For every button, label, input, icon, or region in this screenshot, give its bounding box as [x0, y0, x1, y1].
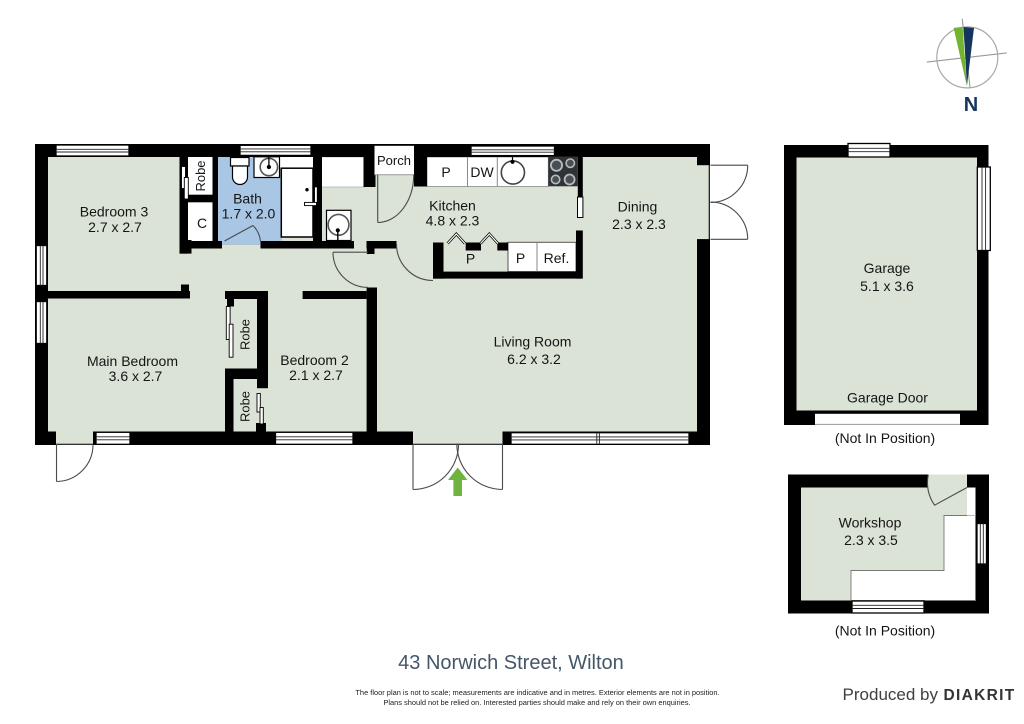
- svg-text:2.1 x 2.7: 2.1 x 2.7: [289, 367, 343, 383]
- svg-text:Living Room: Living Room: [494, 334, 572, 350]
- svg-text:C: C: [197, 215, 207, 231]
- svg-text:(Not In Position): (Not In Position): [835, 623, 935, 639]
- svg-text:4.8 x 2.3: 4.8 x 2.3: [426, 213, 480, 229]
- svg-text:Produced by: Produced by: [843, 685, 939, 704]
- svg-text:43 Norwich Street, Wilton: 43 Norwich Street, Wilton: [398, 652, 624, 674]
- svg-text:Ref.: Ref.: [544, 250, 570, 266]
- svg-text:Robe: Robe: [238, 319, 253, 350]
- svg-text:Bedroom 3: Bedroom 3: [80, 204, 149, 220]
- svg-text:2.7 x 2.7: 2.7 x 2.7: [88, 219, 142, 235]
- svg-text:3.6 x 2.7: 3.6 x 2.7: [109, 368, 163, 384]
- svg-text:2.3 x 2.3: 2.3 x 2.3: [612, 216, 666, 232]
- svg-text:Robe: Robe: [193, 160, 208, 191]
- svg-text:Bedroom 2: Bedroom 2: [280, 352, 349, 368]
- svg-text:6.2 x 3.2: 6.2 x 3.2: [507, 351, 561, 367]
- svg-text:Kitchen: Kitchen: [429, 198, 476, 214]
- svg-text:P: P: [441, 164, 450, 180]
- svg-text:Garage: Garage: [864, 260, 911, 276]
- svg-text:Plans should not be relied on.: Plans should not be relied on. Intereste…: [383, 698, 690, 707]
- svg-text:Main Bedroom: Main Bedroom: [87, 353, 178, 369]
- svg-text:Garage Door: Garage Door: [847, 390, 928, 406]
- svg-text:Bath: Bath: [233, 191, 262, 207]
- svg-text:2.3 x 3.5: 2.3 x 3.5: [844, 532, 898, 548]
- svg-text:5.1 x 3.6: 5.1 x 3.6: [860, 278, 914, 294]
- svg-text:DW: DW: [470, 164, 494, 180]
- svg-text:N: N: [964, 94, 978, 116]
- svg-text:(Not In Position): (Not In Position): [835, 430, 935, 446]
- svg-text:Dining: Dining: [618, 199, 658, 215]
- svg-text:Robe: Robe: [238, 391, 253, 422]
- svg-text:1.7 x 2.0: 1.7 x 2.0: [222, 206, 276, 222]
- svg-text:DIAKRIT: DIAKRIT: [944, 687, 1016, 704]
- svg-text:Porch: Porch: [377, 153, 411, 168]
- svg-text:Workshop: Workshop: [839, 515, 902, 531]
- svg-text:The floor plan is not to scale: The floor plan is not to scale; measurem…: [355, 688, 719, 697]
- svg-text:P: P: [466, 251, 475, 267]
- svg-text:P: P: [516, 250, 525, 266]
